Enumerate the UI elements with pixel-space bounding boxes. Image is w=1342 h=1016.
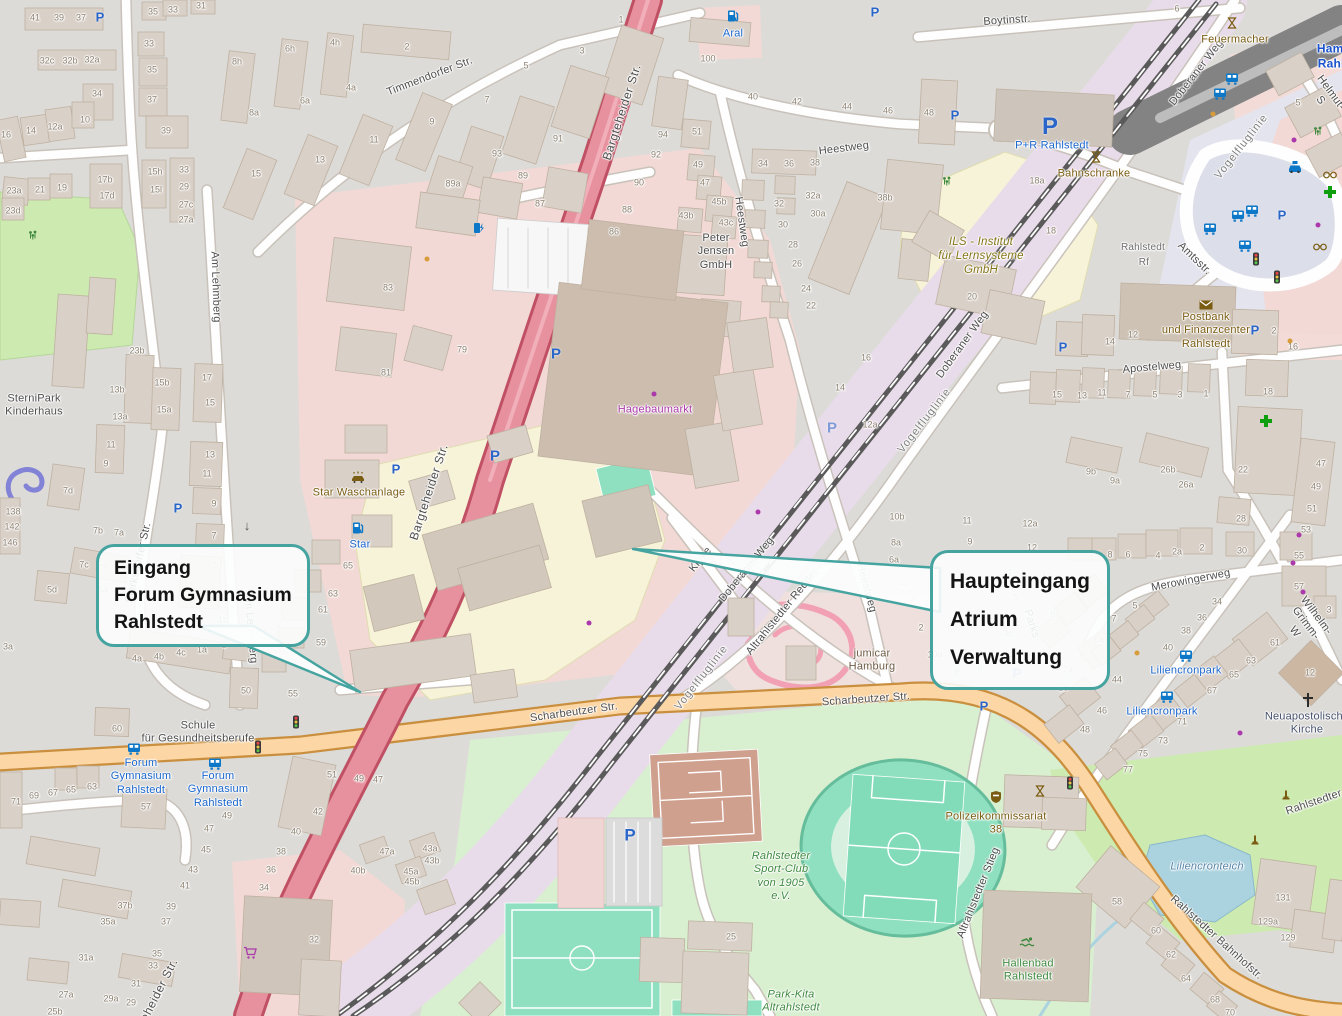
callout-leaders [0, 0, 1342, 1016]
callout-line: Rahlstedt [114, 609, 292, 636]
callout-line: Atrium [950, 601, 1090, 639]
callout-line: Eingang [114, 555, 292, 582]
callout-line: Haupteingang [950, 563, 1090, 601]
map-canvas[interactable]: Timmendorfer Str.Bargteheider Str.Bargte… [0, 0, 1342, 1016]
callout-line: Forum Gymnasium [114, 582, 292, 609]
callout-main-entrance-atrium: Haupteingang Atrium Verwaltung [930, 550, 1110, 690]
callout-entrance-forum-gymnasium: Eingang Forum Gymnasium Rahlstedt [96, 544, 310, 647]
callout-right-pointer [633, 549, 940, 612]
callout-line: Verwaltung [950, 639, 1090, 677]
